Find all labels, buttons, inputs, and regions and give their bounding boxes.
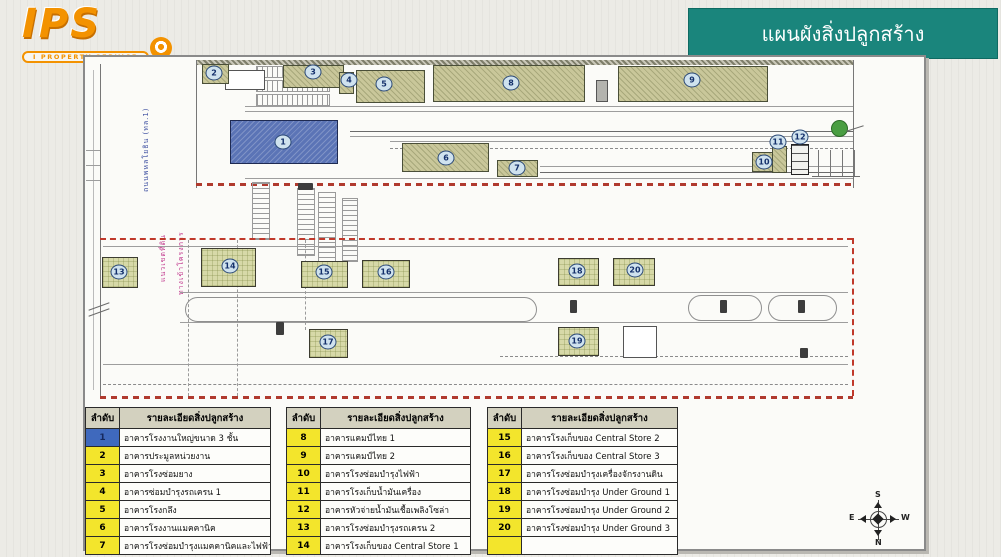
compass-label-bottom: N — [875, 538, 882, 547]
building-detail-cell: อาคารโรงซ่อมยาง — [120, 465, 271, 483]
vehicle — [720, 300, 727, 313]
marker-9: 9 — [684, 73, 701, 88]
compass-arrow-right — [890, 515, 896, 523]
building-no-cell: 9 — [287, 447, 321, 465]
building-no-cell: 5 — [86, 501, 120, 519]
table-row: 8อาคารแคมป์ไทย 1 — [287, 429, 471, 447]
marker-3: 3 — [305, 65, 322, 80]
track-line — [245, 106, 853, 107]
lower-east-boundary — [852, 238, 854, 396]
building-detail-cell: อาคารโรงซ่อมบำรุงรถเครน 2 — [321, 519, 471, 537]
fence-base — [812, 176, 860, 177]
marker-18: 18 — [569, 264, 586, 279]
table-row: 16อาคารโรงเก็บของ Central Store 3 — [488, 447, 678, 465]
leader-line — [846, 125, 863, 132]
marker-11: 11 — [770, 135, 787, 150]
marker-20: 20 — [627, 263, 644, 278]
marker-16: 16 — [378, 265, 395, 280]
table-row: 19อาคารโรงซ่อมบำรุง Under Ground 2 — [488, 501, 678, 519]
building-no-cell: 14 — [287, 537, 321, 555]
building-no-cell: 4 — [86, 483, 120, 501]
compass-label-top: S — [875, 490, 881, 499]
table-row: 4อาคารซ่อมบำรุงรถเครน 1 — [86, 483, 271, 501]
marker-10: 10 — [756, 155, 773, 170]
parking-row — [252, 182, 270, 240]
table-row: 20อาคารโรงซ่อมบำรุง Under Ground 3 — [488, 519, 678, 537]
marker-1: 1 — [275, 135, 292, 150]
col-header-no: ลำดับ — [287, 408, 321, 429]
building-detail-cell: อาคารโรงซ่อมบำรุงไฟฟ้า — [321, 465, 471, 483]
building-no-cell: 2 — [86, 447, 120, 465]
table-row: 7อาคารโรงซ่อมบำรุงแมคคานิคและไฟฟ้า — [86, 537, 271, 555]
marker-2: 2 — [206, 66, 223, 81]
col-header-detail: รายละเอียดสิ่งปลูกสร้าง — [120, 408, 271, 429]
building-detail-cell: อาคารโรงเก็บของ Central Store 3 — [522, 447, 678, 465]
building-no-cell: 8 — [287, 429, 321, 447]
marker-5: 5 — [376, 77, 393, 92]
marker-17: 17 — [320, 335, 337, 350]
building-no-cell: 19 — [488, 501, 522, 519]
building-11 — [772, 146, 787, 173]
parking-row — [318, 192, 336, 264]
table-row: 15อาคารโรงเก็บของ Central Store 2 — [488, 429, 678, 447]
table-row: 18อาคารโรงซ่อมบำรุง Under Ground 1 — [488, 483, 678, 501]
building-12 — [791, 144, 809, 175]
lower-south-boundary — [100, 396, 853, 399]
building-detail-cell: อาคารโรงซ่อมบำรุงเครื่องจักรงานดิน — [522, 465, 678, 483]
building-detail-cell: อาคารหัวจ่ายน้ำมันเชื้อเพลิงโซล่า — [321, 501, 471, 519]
col-header-no: ลำดับ — [488, 408, 522, 429]
building-detail-cell: อาคารแคมป์ไทย 1 — [321, 429, 471, 447]
loop-road — [185, 297, 537, 322]
fence-post — [830, 150, 831, 176]
building-detail-cell: อาคารโรงซ่อมบำรุง Under Ground 3 — [522, 519, 678, 537]
parking-row — [256, 94, 330, 106]
building-table-2: ลำดับ รายละเอียดสิ่งปลูกสร้าง 8อาคารแคมป… — [286, 407, 471, 555]
table-row: 11อาคารโรงเก็บน้ำมันเครื่อง — [287, 483, 471, 501]
table-row: 2อาคารประมูลหน่วยงาน — [86, 447, 271, 465]
upper-south-boundary — [196, 183, 853, 186]
building-no-cell: 12 — [287, 501, 321, 519]
compass-rose: S N E W — [851, 492, 907, 548]
vehicle — [798, 300, 805, 313]
building-no-cell — [488, 537, 522, 555]
tree-icon — [831, 120, 848, 137]
building-no-cell: 16 — [488, 447, 522, 465]
track-line — [350, 131, 853, 132]
building-detail-cell: อาคารโรงกลึง — [120, 501, 271, 519]
table-row — [488, 537, 678, 555]
fence-post — [854, 150, 855, 176]
unnumbered-building — [623, 326, 657, 358]
building-detail-cell: อาคารแคมป์ไทย 2 — [321, 447, 471, 465]
building-detail-cell — [522, 537, 678, 555]
fence-post — [842, 150, 843, 176]
table-row: 17อาคารโรงซ่อมบำรุงเครื่องจักรงานดิน — [488, 465, 678, 483]
small-structure — [596, 80, 608, 102]
boundary-label-1: แนวเขตที่ดิน — [157, 202, 168, 282]
building-no-cell: 18 — [488, 483, 522, 501]
building-no-cell: 7 — [86, 537, 120, 555]
building-table-1: ลำดับ รายละเอียดสิ่งปลูกสร้าง 1อาคารโรงง… — [85, 407, 271, 555]
compass-label-left: E — [849, 513, 854, 522]
track-line-dashed — [500, 356, 848, 357]
plan-west-line-2 — [93, 70, 94, 390]
table-row: 1อาคารโรงงานใหญ่ขนาด 3 ชั้น — [86, 429, 271, 447]
building-detail-cell: อาคารซ่อมบำรุงรถเครน 1 — [120, 483, 271, 501]
building-detail-cell: อาคารโรงงานใหญ่ขนาด 3 ชั้น — [120, 429, 271, 447]
plan-west-line — [100, 64, 101, 397]
building-no-cell: 13 — [287, 519, 321, 537]
compass-label-right: W — [901, 513, 910, 522]
vehicle — [298, 183, 313, 190]
marker-14: 14 — [222, 259, 239, 274]
table-row: 13อาคารโรงซ่อมบำรุงรถเครน 2 — [287, 519, 471, 537]
building-no-cell: 10 — [287, 465, 321, 483]
road-label: ถนนพหลโยธิน (ทล.1) — [140, 92, 151, 192]
track-line — [245, 111, 853, 112]
marker-13: 13 — [111, 265, 128, 280]
col-header-no: ลำดับ — [86, 408, 120, 429]
building-no-cell: 1 — [86, 429, 120, 447]
building-detail-cell: อาคารโรงงานแมคคานิค — [120, 519, 271, 537]
building-no-cell: 15 — [488, 429, 522, 447]
marker-4: 4 — [341, 73, 358, 88]
building-detail-cell: อาคารโรงเก็บของ Central Store 2 — [522, 429, 678, 447]
table-row: 12อาคารหัวจ่ายน้ำมันเชื้อเพลิงโซล่า — [287, 501, 471, 519]
table-row: 6อาคารโรงงานแมคคานิค — [86, 519, 271, 537]
lower-north-boundary — [100, 238, 853, 240]
table-row: 9อาคารแคมป์ไทย 2 — [287, 447, 471, 465]
building-detail-cell: อาคารโรงเก็บของ Central Store 1 — [321, 537, 471, 555]
col-header-detail: รายละเอียดสิ่งปลูกสร้าง — [522, 408, 678, 429]
compass-arrow-down — [874, 530, 882, 536]
building-no-cell: 3 — [86, 465, 120, 483]
col-header-detail: รายละเอียดสิ่งปลูกสร้าง — [321, 408, 471, 429]
table-row: 5อาคารโรงกลึง — [86, 501, 271, 519]
track-line — [103, 246, 848, 247]
upper-left-boundary — [196, 60, 197, 188]
building-detail-cell: อาคารประมูลหน่วยงาน — [120, 447, 271, 465]
track-line-dashed — [103, 384, 848, 385]
marker-7: 7 — [509, 161, 526, 176]
building-detail-cell: อาคารโรงซ่อมบำรุง Under Ground 1 — [522, 483, 678, 501]
west-tick — [86, 150, 100, 151]
building-detail-cell: อาคารโรงซ่อมบำรุงแมคคานิคและไฟฟ้า — [120, 537, 271, 555]
table-row: 3อาคารโรงซ่อมยาง — [86, 465, 271, 483]
building-no-cell: 6 — [86, 519, 120, 537]
building-detail-cell: อาคารโรงเก็บน้ำมันเครื่อง — [321, 483, 471, 501]
table-row: 10อาคารโรงซ่อมบำรุงไฟฟ้า — [287, 465, 471, 483]
track-line — [180, 292, 848, 293]
marker-15: 15 — [316, 265, 333, 280]
track-line — [103, 364, 848, 365]
vehicle — [800, 348, 808, 358]
vehicle — [570, 300, 577, 313]
building-no-cell: 17 — [488, 465, 522, 483]
fence-post — [818, 150, 819, 176]
parking-row — [342, 198, 358, 262]
west-tick — [86, 180, 100, 181]
building-detail-cell: อาคารโรงซ่อมบำรุง Under Ground 2 — [522, 501, 678, 519]
marker-8: 8 — [503, 76, 520, 91]
marker-12: 12 — [792, 130, 809, 145]
building-no-cell: 20 — [488, 519, 522, 537]
table-row: 14อาคารโรงเก็บของ Central Store 1 — [287, 537, 471, 555]
compass-arrow-left — [860, 515, 866, 523]
marker-19: 19 — [569, 334, 586, 349]
vehicle — [276, 322, 284, 335]
west-tick — [86, 165, 100, 166]
compass-arrow-up — [874, 502, 882, 508]
yard-area — [225, 70, 265, 90]
marker-6: 6 — [438, 151, 455, 166]
building-no-cell: 11 — [287, 483, 321, 501]
track-line — [245, 178, 853, 179]
boundary-label-2: ทางเข้าโครงการ — [175, 215, 186, 295]
building-table-3: ลำดับ รายละเอียดสิ่งปลูกสร้าง 15อาคารโรง… — [487, 407, 678, 555]
